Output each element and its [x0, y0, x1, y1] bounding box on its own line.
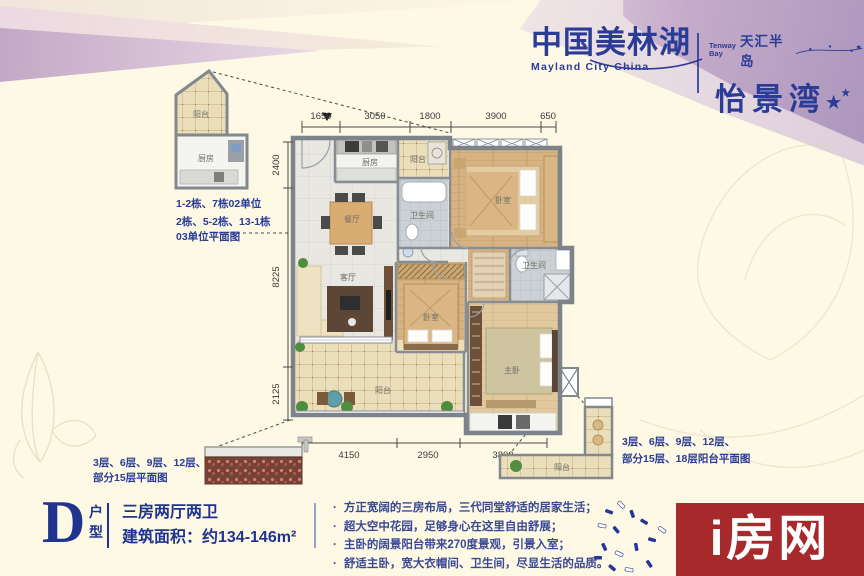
label-bath1: 卫生间 — [410, 210, 434, 220]
unit-letter: D — [42, 492, 85, 552]
star-icon: ★ — [826, 93, 841, 112]
inset-bottom-left-planter — [205, 437, 312, 484]
dim-left-1: 2400 — [271, 154, 282, 175]
inset-left-caption-3: 03单位平面图 — [176, 230, 240, 243]
inset-br-caption-2: 部分15层、18层阳台平面图 — [622, 452, 750, 465]
flyer-page: 阳台 厨房 1-2栋、7栋02单位 2栋、5-2栋、13-1栋 03单位平面图 — [0, 0, 864, 576]
watermark-text: i房网 — [710, 515, 831, 564]
feature-list: ·方正宽阔的三房布局，三代同堂舒适的居家生活； ·超大空中花园，足够身心在这里自… — [333, 499, 608, 574]
unit-divider — [107, 503, 109, 548]
unit-type-label: 户 型 — [89, 502, 103, 543]
project-name: 怡景湾★★ — [715, 74, 864, 119]
label-bedroom2: 卧室 — [423, 312, 439, 322]
project-subtitle-cn: 天汇半岛 — [740, 30, 792, 70]
main-floor-plan: 厨房 阳台 卫生间 卧室 餐厅 客厅 卧室 主卧 卫生间 阳台 — [293, 113, 578, 433]
label-master: 主卧 — [504, 365, 520, 375]
label-kitchen: 厨房 — [362, 157, 378, 167]
dim-top-4: 3900 — [485, 111, 506, 122]
inset-br-balcony-label: 阳台 — [554, 462, 570, 472]
dim-top-5: 650 — [540, 111, 556, 122]
dim-bottom-2: 2950 — [417, 450, 438, 461]
inset-left-kitchen-label: 厨房 — [198, 153, 214, 163]
dim-top-1: 1650 — [310, 111, 331, 122]
star-icon: ★ — [841, 88, 850, 99]
label-bedroom1: 卧室 — [495, 195, 511, 205]
project-logo: Tenway Bay 天汇半岛 怡景湾★★ — [709, 30, 864, 119]
inset-left-plan: 阳台 厨房 — [176, 71, 247, 188]
flower-sketch-left — [14, 352, 96, 478]
label-bath2: 卫生间 — [522, 260, 546, 270]
dim-left-3: 2125 — [271, 383, 282, 404]
label-balcony-main: 阳台 — [375, 385, 391, 395]
label-dining: 餐厅 — [344, 215, 360, 224]
bullet-icon: · — [333, 536, 337, 555]
unit-summary: 三房两厅两卫 建筑面积：约134-146m² — [122, 501, 296, 551]
features-divider — [314, 503, 316, 548]
inset-left-caption-1: 1-2栋、7栋02单位 — [176, 197, 262, 210]
unit-area: 建筑面积：约134-146m² — [122, 526, 296, 551]
inset-left-caption-2: 2栋、5-2栋、13-1栋 — [176, 215, 271, 228]
bullet-icon: · — [333, 499, 337, 518]
feature-item: ·主卧的阔景阳台带来270度景观，引景入室； — [333, 536, 608, 555]
dim-bottom-1: 4150 — [338, 450, 359, 461]
bullet-icon: · — [333, 555, 337, 574]
unit-layout: 三房两厅两卫 — [122, 501, 296, 526]
project-en-tag: Tenway Bay — [709, 42, 736, 58]
inset-bl-caption-1: 3层、6层、9层、12层、 — [93, 457, 206, 469]
watermark-badge: i房网 — [676, 503, 864, 576]
feature-item: ·方正宽阔的三房布局，三代同堂舒适的居家生活； — [333, 499, 608, 518]
feature-item: ·舒适主卧，宽大衣帽间、卫生间，尽显生活的品质。 — [333, 555, 608, 574]
shooting-star-icon — [796, 42, 864, 58]
logo-divider — [697, 33, 699, 93]
label-balcony-small: 阳台 — [410, 154, 426, 164]
flower-sketch-right — [640, 145, 864, 468]
feature-item: ·超大空中花园，足够身心在这里自由舒展； — [333, 518, 608, 537]
dim-top-3: 1800 — [419, 111, 440, 122]
label-living: 客厅 — [340, 272, 356, 282]
inset-br-caption-1: 3层、6层、9层、12层、 — [622, 436, 735, 448]
brand-swoosh-icon — [586, 58, 706, 72]
inset-bl-caption-2: 部分15层平面图 — [93, 471, 168, 484]
inset-left-balcony-label: 阳台 — [193, 109, 209, 119]
bullet-icon: · — [333, 518, 337, 537]
brand-name-cn: 中国美林湖 — [531, 27, 691, 58]
dim-left-2: 8225 — [271, 266, 282, 287]
dim-top-2: 3050 — [364, 111, 385, 122]
